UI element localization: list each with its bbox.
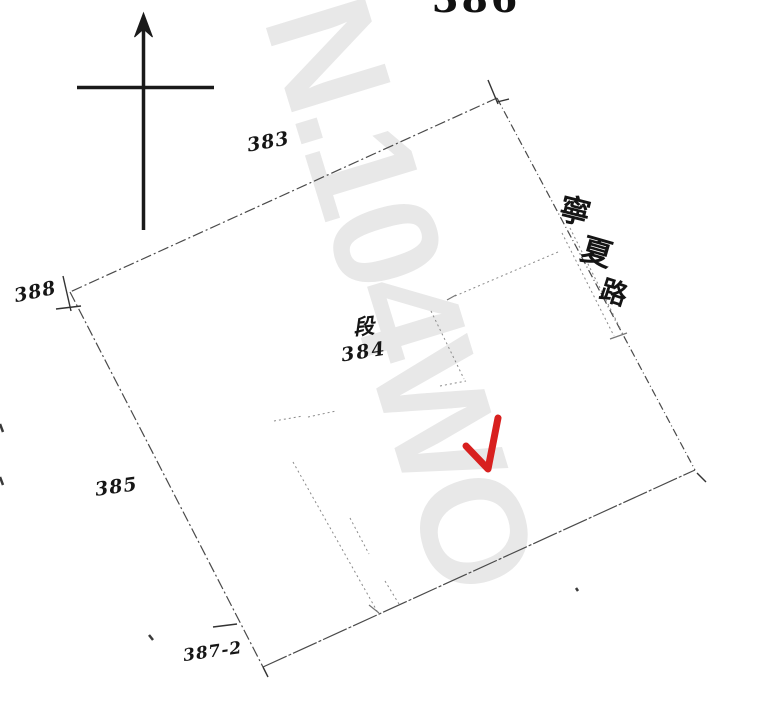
corner-tick-marks (56, 80, 706, 677)
interior-line-ticks (369, 295, 627, 613)
district-character: 段 (351, 310, 375, 342)
north-arrow-icon (77, 13, 214, 230)
red-checkmark-annotation (466, 418, 498, 469)
parcel-boundary (70, 98, 695, 667)
cadastral-sketch-page: N.104WO (0, 0, 761, 720)
interior-building-lines (274, 228, 621, 611)
sheet-number: 386 (432, 0, 520, 21)
